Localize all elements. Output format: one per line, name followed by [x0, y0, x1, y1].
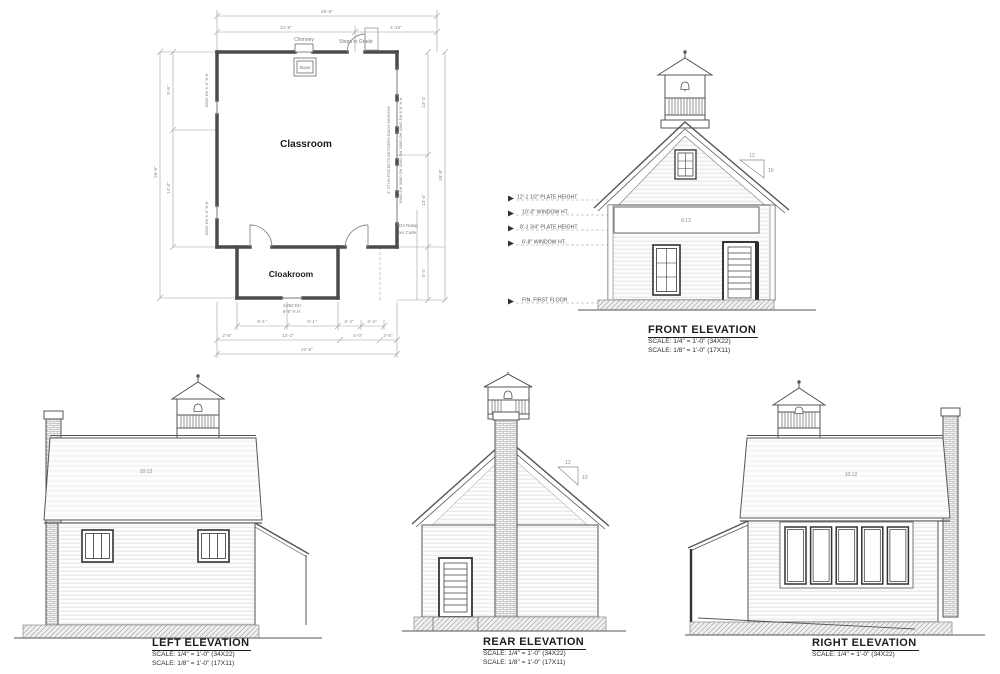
rear-elevation-drawing: 12 10 [400, 372, 630, 647]
front-door [723, 242, 759, 303]
right-roof [740, 436, 950, 522]
bell-icon [194, 404, 202, 412]
chimney-label: Chimney [294, 37, 314, 43]
dim-top-overall: 26'-6" [321, 9, 333, 14]
dim-bottom-r1d: 2'-4" [367, 319, 377, 324]
rear-stoop [433, 617, 478, 631]
left-elevation-title: LEFT ELEVATION [152, 637, 251, 651]
right-window-note: 30/60 DH 30/60 DH 30/60 DH 30/60 DH 30/6… [398, 96, 403, 203]
front-pitch-marker [740, 160, 764, 178]
annotation-plate-height-8: 8'-1 3/4" PLATE HEIGHT [520, 225, 578, 231]
annotation-fin-first-floor: FIN. FIRST FLOOR [522, 298, 568, 304]
dim-bottom-r1b: 6'-1" [307, 319, 317, 324]
left-roof [44, 436, 262, 524]
stove-and-chimney [294, 44, 316, 76]
left-elevation-drawing: 10:12 [10, 372, 340, 647]
right-window-band [780, 522, 913, 588]
stove-label: Stove [299, 65, 311, 70]
band-window-3 [836, 527, 857, 584]
cloak-window-note-1: 24/50 DH [283, 303, 301, 308]
ada-ramp-label-1: ADA Ramp [396, 223, 418, 228]
dim-left-seg2: 14'-0" [166, 182, 171, 194]
steps-label: Steps to Grade [339, 39, 373, 45]
dim-top-right: 4'-10" [390, 25, 402, 30]
right-elevation-title-block: RIGHT ELEVATION SCALE: 1/4" = 1'-0" (34X… [812, 633, 919, 660]
front-cupola [658, 51, 712, 128]
drawing-sheet: 26'-6" 21'-8" 4'-10" 26'-6" 5'-6" 14'-0"… [0, 0, 1000, 674]
front-window [653, 245, 680, 295]
dim-left-outer: 26'-6" [153, 166, 158, 178]
band-window-5 [887, 527, 908, 584]
dim-bottom-r2b: 12'-2" [282, 333, 294, 338]
dim-top-left: 21'-8" [280, 25, 292, 30]
entry-door-swing [345, 225, 368, 247]
rear-pitch-rise: 12 [565, 460, 571, 466]
classroom-label: Classroom [280, 139, 332, 150]
dim-right-outer: 26'-8" [438, 169, 443, 181]
cupola-roof [658, 58, 712, 75]
cloak-window-note-2: 6'-8" H.H. [283, 309, 301, 314]
dim-right-seg1: 13'-4" [421, 96, 426, 108]
dim-bottom-r2c: 5'-0" [353, 333, 363, 338]
ada-ramp-label-2: per Code [398, 230, 417, 235]
chimney-plan [295, 44, 313, 52]
cloakroom-door-swing [250, 225, 272, 247]
rear-elevation-scale-1: SCALE: 1/4" = 1'-0" (34X22) [483, 650, 586, 659]
cloakroom-label: Cloakroom [269, 269, 314, 279]
left-elevation-title-block: LEFT ELEVATION SCALE: 1/4" = 1'-0" (34X2… [152, 633, 251, 668]
front-pitch-run: 10 [768, 168, 774, 174]
rear-pitch-run: 10 [582, 475, 588, 481]
bell-icon [795, 407, 803, 414]
right-roof-slope: 10:12 [845, 472, 858, 478]
annotation-plate-height-12: 12'-1 1/2" PLATE HEIGHT [517, 195, 578, 201]
left-window-2 [198, 530, 229, 562]
right-elevation-drawing: 10:12 [685, 372, 1000, 647]
rear-elevation-scale-2: SCALE: 1/8" = 1'-0" (17X11) [483, 659, 586, 668]
left-roof-slope: 10:12 [140, 469, 153, 475]
rear-elevation-title-block: REAR ELEVATION SCALE: 1/4" = 1'-0" (34X2… [483, 632, 586, 667]
left-window-note-bottom: 30/30 DH 5'-0" H.H. [204, 200, 209, 235]
annotation-window-ht-10: 10'-0" WINDOW HT. [522, 210, 569, 216]
left-porch [255, 523, 309, 625]
front-elevation-title-block: FRONT ELEVATION SCALE: 1/4" = 1'-0" (34X… [648, 320, 758, 355]
left-window-note-top: 30/30 DH 5'-0" H.H. [204, 72, 209, 107]
front-foundation [598, 300, 774, 310]
dim-right-lower: 4'-4" [421, 268, 426, 278]
rear-elevation-title: REAR ELEVATION [483, 636, 586, 650]
dim-bottom-r1c: 2'-4" [344, 319, 354, 324]
bell-icon [504, 391, 512, 399]
plan-window-glyphs [217, 68, 397, 298]
attic-window [675, 150, 696, 179]
right-elevation-title: RIGHT ELEVATION [812, 637, 919, 651]
front-elevation-scale-2: SCALE: 1/8" = 1'-0" (17X11) [648, 347, 758, 356]
dim-right-seg2: 13'-4" [421, 194, 426, 206]
right-elevation-scale-1: SCALE: 1/4" = 1'-0" (34X22) [812, 651, 919, 660]
band-window-2 [811, 527, 832, 584]
corner-board-right [770, 205, 775, 300]
corner-board-left [608, 205, 613, 300]
front-elevation-scale-1: SCALE: 1/4" = 1'-0" (34X22) [648, 338, 758, 347]
floor-plan-walls [217, 52, 397, 298]
dim-left-seg1: 5'-6" [166, 85, 171, 95]
dim-bottom-overall: 22'-6" [301, 347, 313, 352]
dim-bottom-r2d: 2'-8" [383, 333, 393, 338]
left-elevation-scale-2: SCALE: 1/8" = 1'-0" (17X11) [152, 660, 251, 669]
front-pitch-rise: 12 [749, 153, 755, 159]
dim-bottom-r2a: 2'-8" [222, 333, 232, 338]
band-window-4 [862, 527, 883, 584]
level-annotations: 12'-1 1/2" PLATE HEIGHT 10'-0" WINDOW HT… [508, 195, 608, 305]
front-elevation-title: FRONT ELEVATION [648, 324, 758, 338]
annotation-window-ht-6: 6'-8" WINDOW HT. [522, 240, 566, 246]
door-edge [755, 242, 759, 303]
left-window-1 [82, 530, 113, 562]
floor-plan-drawing: 26'-6" 21'-8" 4'-10" 26'-6" 5'-6" 14'-0"… [0, 0, 500, 370]
band-window-1 [785, 527, 806, 584]
right-porch [688, 521, 748, 622]
stud-pockets-note: 3" STUD POCKETS BETWEEN EACH WINDOW [386, 106, 391, 194]
porch-band-slope: 6:12 [681, 218, 691, 224]
left-elevation-scale-1: SCALE: 1/4" = 1'-0" (34X22) [152, 651, 251, 660]
rear-pitch-marker [558, 467, 578, 485]
rear-louvered-door [439, 558, 472, 617]
dim-bottom-r1a: 6'-1" [257, 319, 267, 324]
rear-chimney [493, 412, 519, 617]
